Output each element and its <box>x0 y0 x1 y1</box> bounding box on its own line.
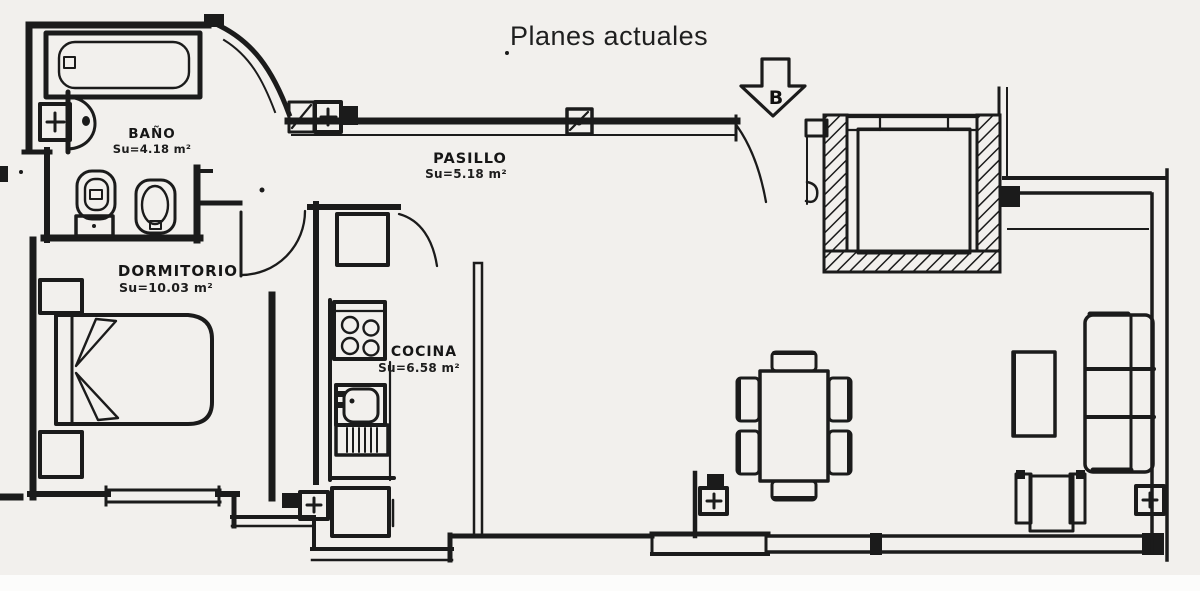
utility-box <box>341 106 358 125</box>
room-label-dormitorio: DORMITORIO <box>118 262 238 280</box>
floor-plan-page: B Planes actuales BAÑO Su=4.18 m² PASILL… <box>0 0 1200 591</box>
room-label-pasillo: PASILLO <box>433 151 507 167</box>
hatched-wall-left <box>824 115 847 272</box>
room-area-dormitorio: Su=10.03 m² <box>119 280 213 295</box>
edge-dot <box>19 170 23 174</box>
compass-letter: B <box>769 87 783 109</box>
room-area-pasillo: Su=5.18 m² <box>425 167 507 181</box>
page-title: Planes actuales <box>510 21 708 51</box>
window-mullion <box>870 533 882 555</box>
scan-speck <box>505 51 509 55</box>
floor-plan-drawing: B Planes actuales BAÑO Su=4.18 m² PASILL… <box>0 0 1200 591</box>
room-area-bano: Su=4.18 m² <box>113 142 192 156</box>
scan-edge <box>0 575 1200 591</box>
room-label-cocina: COCINA <box>391 344 457 360</box>
plan-dot <box>260 188 265 193</box>
dining-table <box>760 371 828 481</box>
hatched-wall-right <box>977 115 1000 255</box>
edge-mark <box>0 166 8 182</box>
room-area-cocina: Su=6.58 m² <box>378 361 460 375</box>
utility-box-kitchen <box>282 493 300 508</box>
patio-right-box <box>1000 186 1020 207</box>
room-label-bano: BAÑO <box>128 125 176 142</box>
